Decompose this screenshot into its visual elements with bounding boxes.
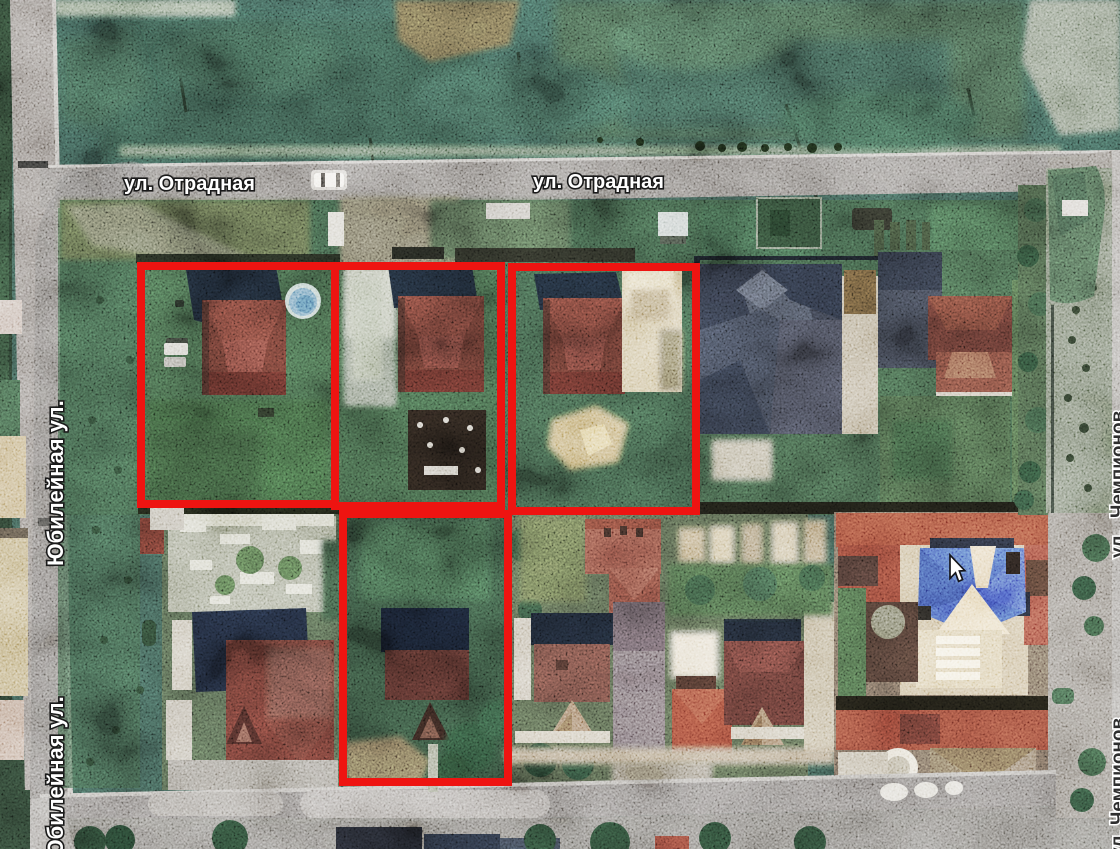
svg-text:Юбилейная ул.: Юбилейная ул.: [43, 400, 68, 566]
svg-text:Юбилейная ул.: Юбилейная ул.: [43, 696, 68, 849]
svg-text:ул. Отрадная: ул. Отрадная: [124, 173, 255, 195]
svg-text:ул.: ул.: [1108, 530, 1120, 558]
svg-text:Чемпионов: Чемпионов: [1108, 411, 1120, 518]
svg-text:ул. Чемпионов: ул. Чемпионов: [1108, 718, 1120, 849]
svg-text:ул. Отрадная: ул. Отрадная: [533, 171, 664, 193]
